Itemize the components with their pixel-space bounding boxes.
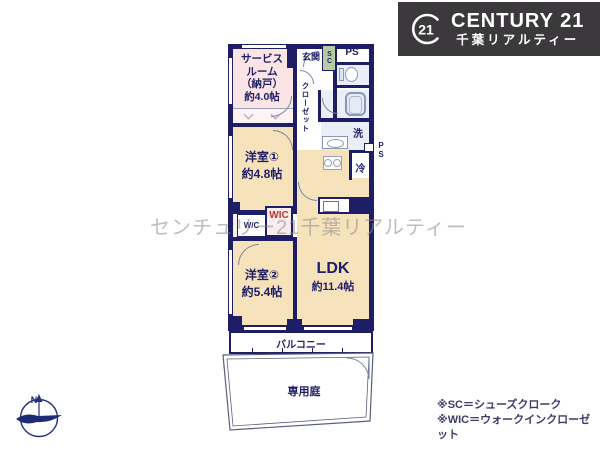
wall-bath-bottom bbox=[318, 118, 373, 122]
logo-box: 21 CENTURY 21 千葉リアルティー bbox=[398, 2, 600, 56]
seal-number: 21 bbox=[418, 22, 434, 38]
window-room2-bottom bbox=[244, 326, 286, 331]
service-room-label: サービス ルーム （納戸） 約4.0帖 bbox=[231, 53, 293, 103]
footnotes: ※SC＝シューズクローク ※WIC＝ウォークインクローゼット bbox=[437, 398, 600, 443]
pier-bottom-right bbox=[353, 319, 370, 329]
footnote-wic: ※WIC＝ウォークインクローゼット bbox=[437, 413, 600, 443]
ldk-label: LDK bbox=[297, 260, 369, 278]
fridge-label: 冷 bbox=[352, 160, 369, 175]
ps-top-label: PS bbox=[336, 47, 368, 58]
company-name: 千葉リアルティー bbox=[456, 33, 579, 48]
genkan-label: 玄関 bbox=[297, 50, 325, 63]
watermark-text: センチュリー21千葉リアルティー bbox=[150, 211, 467, 240]
compass-icon bbox=[13, 392, 65, 444]
wall-ps-bottom bbox=[333, 62, 373, 65]
bathtub-icon bbox=[345, 92, 366, 116]
laundry-label: 洗 bbox=[349, 125, 367, 140]
wall-service-bottom bbox=[228, 123, 297, 127]
garden-label: 専用庭 bbox=[280, 383, 328, 399]
toilet-bowl-icon bbox=[345, 67, 358, 82]
century21-seal-icon: 21 bbox=[408, 11, 444, 47]
vanity-sink-icon bbox=[322, 136, 348, 149]
wall-bath-left bbox=[318, 90, 321, 122]
pier-bottom-mid bbox=[287, 319, 302, 329]
brand-name: CENTURY 21 bbox=[451, 10, 584, 32]
ps-notch bbox=[364, 143, 374, 152]
room1-label: 洋室① 約4.8帖 bbox=[231, 149, 293, 183]
room2-label: 洋室② 約5.4帖 bbox=[231, 267, 293, 301]
wall-room1-right bbox=[293, 127, 297, 214]
ps-side-label: P S bbox=[376, 141, 386, 159]
window-service-top bbox=[242, 44, 286, 49]
pier-bottom-left bbox=[228, 316, 242, 329]
window-ldk-bottom bbox=[304, 326, 352, 331]
footnote-sc: ※SC＝シューズクローク bbox=[437, 398, 600, 413]
closet-label: クローゼット bbox=[300, 82, 311, 133]
floorplan-page: 21 CENTURY 21 千葉リアルティー センチュリー21千葉リアルティー bbox=[0, 0, 600, 450]
balcony-label: バルコニー bbox=[229, 336, 373, 351]
toilet-tank-icon bbox=[339, 68, 344, 81]
wall-toilet-bottom bbox=[336, 85, 373, 88]
ldk-size-label: 約11.4帖 bbox=[297, 278, 369, 294]
shoes-closet-box: SC bbox=[322, 45, 336, 71]
stove-icon bbox=[323, 156, 342, 170]
